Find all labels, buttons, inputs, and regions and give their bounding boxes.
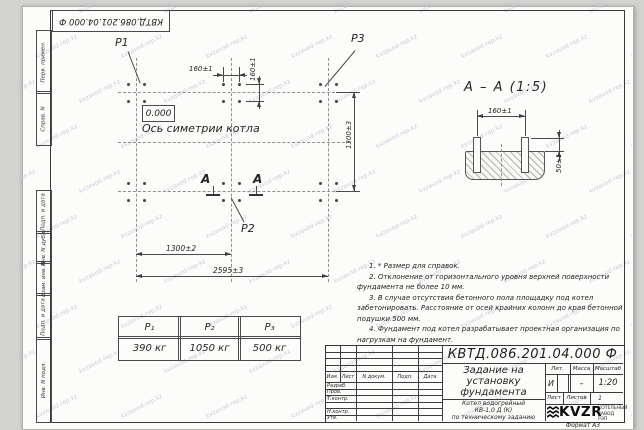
anchor-bolt-dot	[319, 182, 322, 185]
scanned-drawing-page: kvzavod-rep.kzkvzavod-rep.kzkvzavod-rep.…	[0, 0, 644, 430]
symmetry-axis-label: Ось симетрии котла	[142, 122, 260, 135]
dim-text-1300-3: 1300±3	[345, 119, 353, 149]
anchor-bolt-dot	[335, 199, 338, 202]
tb-product-line-1: Котел водогрейный	[442, 400, 545, 407]
table-value-text: 1050 кг	[190, 343, 230, 354]
title-block-line	[418, 345, 419, 421]
anchor-bolt-section-right	[521, 137, 529, 173]
anchor-bolt-dot	[143, 100, 146, 103]
dim-arrow	[257, 78, 261, 84]
kvzr-logo-text: KVZR	[559, 403, 599, 421]
anchor-bolt-dot	[319, 199, 322, 202]
note-3: 3. В случае отсутствия бетонного пола пл…	[357, 293, 627, 325]
anchor-bolt-dot	[319, 100, 322, 103]
dim-text-section-160: 160±1	[488, 107, 512, 115]
anchor-bolt-dot	[222, 182, 225, 185]
extension-line	[336, 191, 360, 192]
tb-mass-label: Масса	[570, 363, 593, 374]
anchor-bolt-dot	[143, 182, 146, 185]
title-block-line	[392, 345, 393, 421]
dim-arrow	[257, 101, 261, 107]
section-cut-mark	[206, 194, 220, 196]
tb-col-data: Дата	[418, 371, 442, 382]
anchor-bolt-dot	[222, 83, 225, 86]
note-4: 4. Фундамент под котел разрабатывает про…	[357, 324, 627, 345]
dim-line-section-160	[477, 116, 525, 117]
anchor-bolt-dot	[238, 100, 241, 103]
note-2: 2. Отклонение от горизонтального уровня …	[357, 272, 627, 293]
tb-lit-label: Лит.	[545, 363, 570, 374]
tb-lit-value: И	[545, 374, 557, 392]
title-block-line	[325, 358, 442, 359]
loads-table-value-p1: 390 кг	[118, 336, 181, 361]
extension-line	[336, 92, 360, 93]
tb-product-line-3: по техническому заданию	[442, 414, 545, 421]
section-view-title: А – А (1:5)	[464, 80, 548, 95]
dim-arrow	[557, 132, 561, 138]
note-1: 1. * Размер для справок.	[357, 261, 627, 272]
anchor-bolt-dot	[143, 199, 146, 202]
tb-title-line-3: фундамента	[442, 386, 545, 398]
title-block-line	[568, 374, 569, 392]
dim-line-1300-2	[136, 254, 231, 255]
level-mark-value: 0.000	[146, 109, 172, 119]
tb-col-izm: Изм.	[325, 371, 340, 382]
load-point-label-p3: P3	[351, 32, 365, 45]
tb-role-utv: Утв.	[325, 415, 358, 421]
tb-scale-label: Масштаб	[593, 363, 623, 374]
anchor-bolt-dot	[127, 199, 130, 202]
anchor-bolt-dot	[127, 182, 130, 185]
anchor-bolt-dot	[127, 100, 130, 103]
load-point-label-p2: P2	[241, 222, 255, 235]
dim-arrow	[239, 73, 245, 77]
dim-arrow	[322, 274, 328, 278]
tb-role-tkontr: Т.контр.	[325, 395, 358, 402]
tb-doc-number: КВТД.086.201.04.000 Ф	[442, 345, 623, 363]
anchor-bolt-dot	[143, 83, 146, 86]
extension-line	[246, 101, 264, 102]
load-point-label-p1: P1	[115, 36, 129, 49]
title-block-line	[325, 365, 442, 366]
anchor-bolt-dot	[335, 182, 338, 185]
tb-scale-value: 1:20	[593, 374, 623, 392]
section-centerline	[501, 144, 502, 186]
extension-line	[525, 110, 526, 136]
table-value-text: 390 кг	[133, 343, 167, 354]
level-mark-box: 0.000	[142, 105, 175, 122]
dim-arrow	[352, 185, 356, 191]
format-label: Формат А3	[548, 421, 618, 430]
title-block-line	[325, 352, 442, 353]
dim-arrow	[136, 252, 142, 256]
dim-arrow	[136, 274, 142, 278]
dim-text-section-50: 50±1	[555, 151, 563, 173]
dim-arrow	[519, 114, 525, 118]
tb-mass-value: –	[570, 374, 593, 392]
anchor-bolt-dot	[238, 199, 241, 202]
anchor-bolt-section-left	[473, 137, 481, 173]
table-header-text: P₂	[204, 322, 214, 333]
loads-table-value-p3: 500 кг	[238, 336, 301, 361]
anchor-bolt-dot	[238, 83, 241, 86]
dim-arrow	[477, 114, 483, 118]
anchor-bolt-dot	[222, 199, 225, 202]
dim-text-2595: 2595±3	[213, 266, 243, 275]
tb-role-nkontr: Н.контр.	[325, 408, 358, 415]
dim-arrow	[225, 252, 231, 256]
tb-role-razrab: Разраб.	[325, 382, 358, 389]
table-value-text: 500 кг	[253, 343, 287, 354]
dim-line-2595	[136, 276, 328, 277]
tb-col-list: Лист	[340, 371, 356, 382]
anchor-bolt-dot	[238, 182, 241, 185]
anchor-bolt-dot	[222, 100, 225, 103]
tb-col-ndokum: N докум.	[356, 371, 392, 382]
company-line-1: КОТЕЛЬНЫЙ	[598, 406, 624, 412]
kvzr-logo-icon	[547, 406, 559, 419]
dim-text-160v: 160±1	[249, 55, 257, 81]
tb-col-podp: Подп.	[392, 371, 418, 382]
technical-notes: 1. * Размер для справок. 2. Отклонение о…	[357, 261, 627, 345]
tb-product-line-2: КВ-1,0 Д (К)	[442, 407, 545, 414]
dim-arrow	[217, 73, 223, 77]
anchor-bolt-dot	[335, 83, 338, 86]
table-header-text: P₃	[264, 322, 274, 333]
dim-line-1300-3	[354, 92, 355, 191]
dim-text-1300-2: 1300±2	[166, 244, 196, 253]
table-header-text: P₁	[144, 322, 154, 333]
anchor-bolt-dot	[127, 83, 130, 86]
drawing-layer: КВТД.086.201.04.000 Ф Перв. примен. Спра…	[0, 0, 644, 430]
dim-text-160h: 160±1	[189, 65, 213, 73]
section-cut-mark	[249, 194, 263, 196]
section-cut-letter-right: А	[253, 172, 262, 186]
loads-table-value-p2: 1050 кг	[178, 336, 241, 361]
anchor-bolt-dot	[319, 83, 322, 86]
extension-line	[246, 84, 264, 85]
section-cut-letter-left: А	[201, 172, 210, 186]
dim-arrow	[352, 92, 356, 98]
anchor-bolt-dot	[335, 100, 338, 103]
title-block-line	[557, 374, 558, 392]
